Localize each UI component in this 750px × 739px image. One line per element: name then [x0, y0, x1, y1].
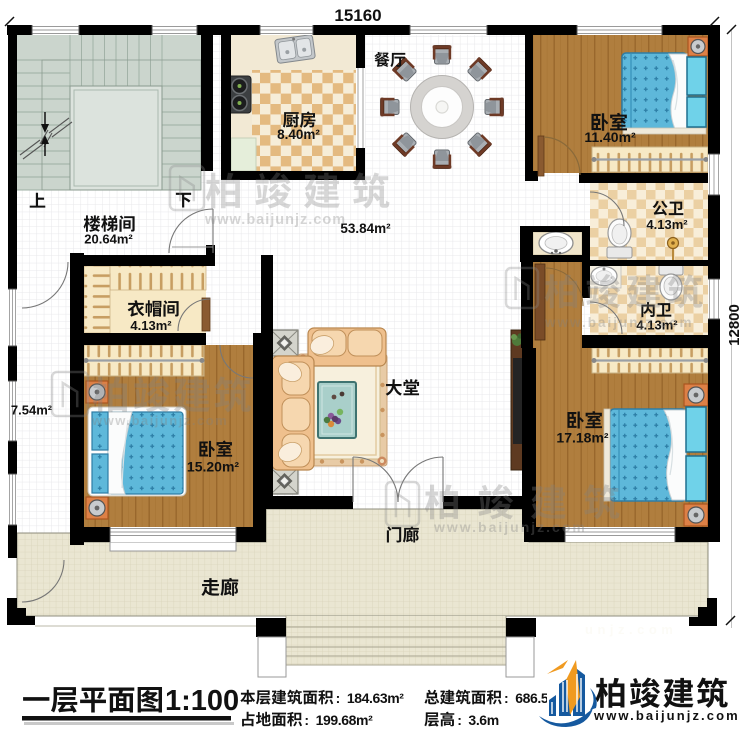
svg-text:: 199.68m²: : 199.68m² — [304, 712, 373, 728]
svg-text:www.baijunjz.com: www.baijunjz.com — [91, 413, 228, 428]
svg-text:20.64m²: 20.64m² — [84, 232, 133, 247]
svg-text:7.54m²: 7.54m² — [11, 403, 53, 418]
svg-text:unjz.com: unjz.com — [585, 622, 677, 637]
svg-text:15160: 15160 — [334, 6, 381, 25]
svg-text:: 184.63m²: : 184.63m² — [336, 690, 405, 706]
svg-text:11.40m²: 11.40m² — [584, 129, 636, 145]
svg-text:4.13m²: 4.13m² — [646, 217, 688, 232]
svg-text:17.18m²: 17.18m² — [556, 430, 608, 446]
svg-text:4.13m²: 4.13m² — [130, 318, 172, 333]
svg-text:12800: 12800 — [726, 304, 743, 346]
svg-text:: 3.6m: : 3.6m — [457, 712, 499, 728]
svg-text:www.baijunjz.com: www.baijunjz.com — [204, 212, 346, 228]
svg-text:www.baijunjz.com: www.baijunjz.com — [593, 708, 740, 723]
svg-text:www.baijunjz.com: www.baijunjz.com — [544, 315, 694, 330]
svg-text:8.40m²: 8.40m² — [277, 127, 320, 142]
svg-text:15.20m²: 15.20m² — [187, 459, 239, 475]
svg-text:1:100: 1:100 — [165, 685, 239, 717]
svg-text:www.baijunjz.com: www.baijunjz.com — [433, 519, 587, 535]
svg-text:53.84m²: 53.84m² — [340, 221, 391, 236]
